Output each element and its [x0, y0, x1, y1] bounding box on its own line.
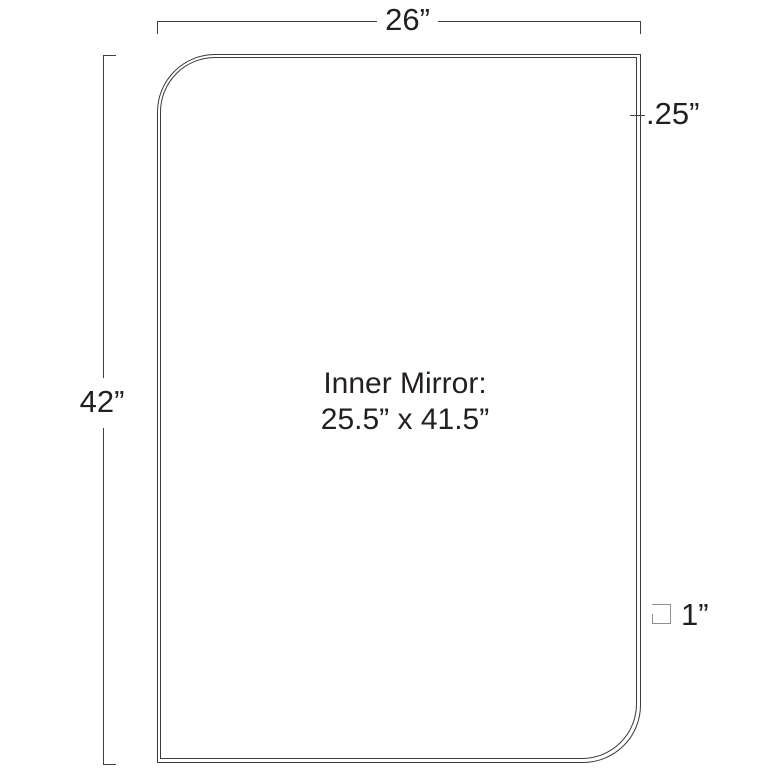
height-dimension-tick-bottom [103, 764, 116, 765]
height-dimension-line-top [103, 55, 104, 378]
mirror-dimension-diagram: 26” 42” .25” Inner Mirror: 25.5” x 41.5”… [0, 0, 780, 780]
inner-mirror-label-line2: 25.5” x 41.5” [250, 402, 560, 438]
height-dimension-tick-top [103, 55, 116, 56]
frame-thickness-label: .25” [646, 98, 699, 129]
square-corner-icon [652, 604, 671, 624]
corner-dimension-label: 1” [681, 599, 709, 630]
inner-mirror-label: Inner Mirror: 25.5” x 41.5” [250, 366, 560, 438]
width-dimension-line-right [438, 21, 641, 22]
frame-thickness-tick [630, 115, 645, 116]
width-dimension-tick-right [640, 21, 641, 34]
inner-mirror-label-line1: Inner Mirror: [250, 366, 560, 402]
height-dimension-label: 42” [72, 386, 132, 417]
width-dimension-label: 26” [377, 4, 438, 35]
height-dimension-line-bottom [103, 428, 104, 765]
width-dimension-line-left [157, 21, 377, 22]
width-dimension-tick-left [157, 21, 158, 34]
